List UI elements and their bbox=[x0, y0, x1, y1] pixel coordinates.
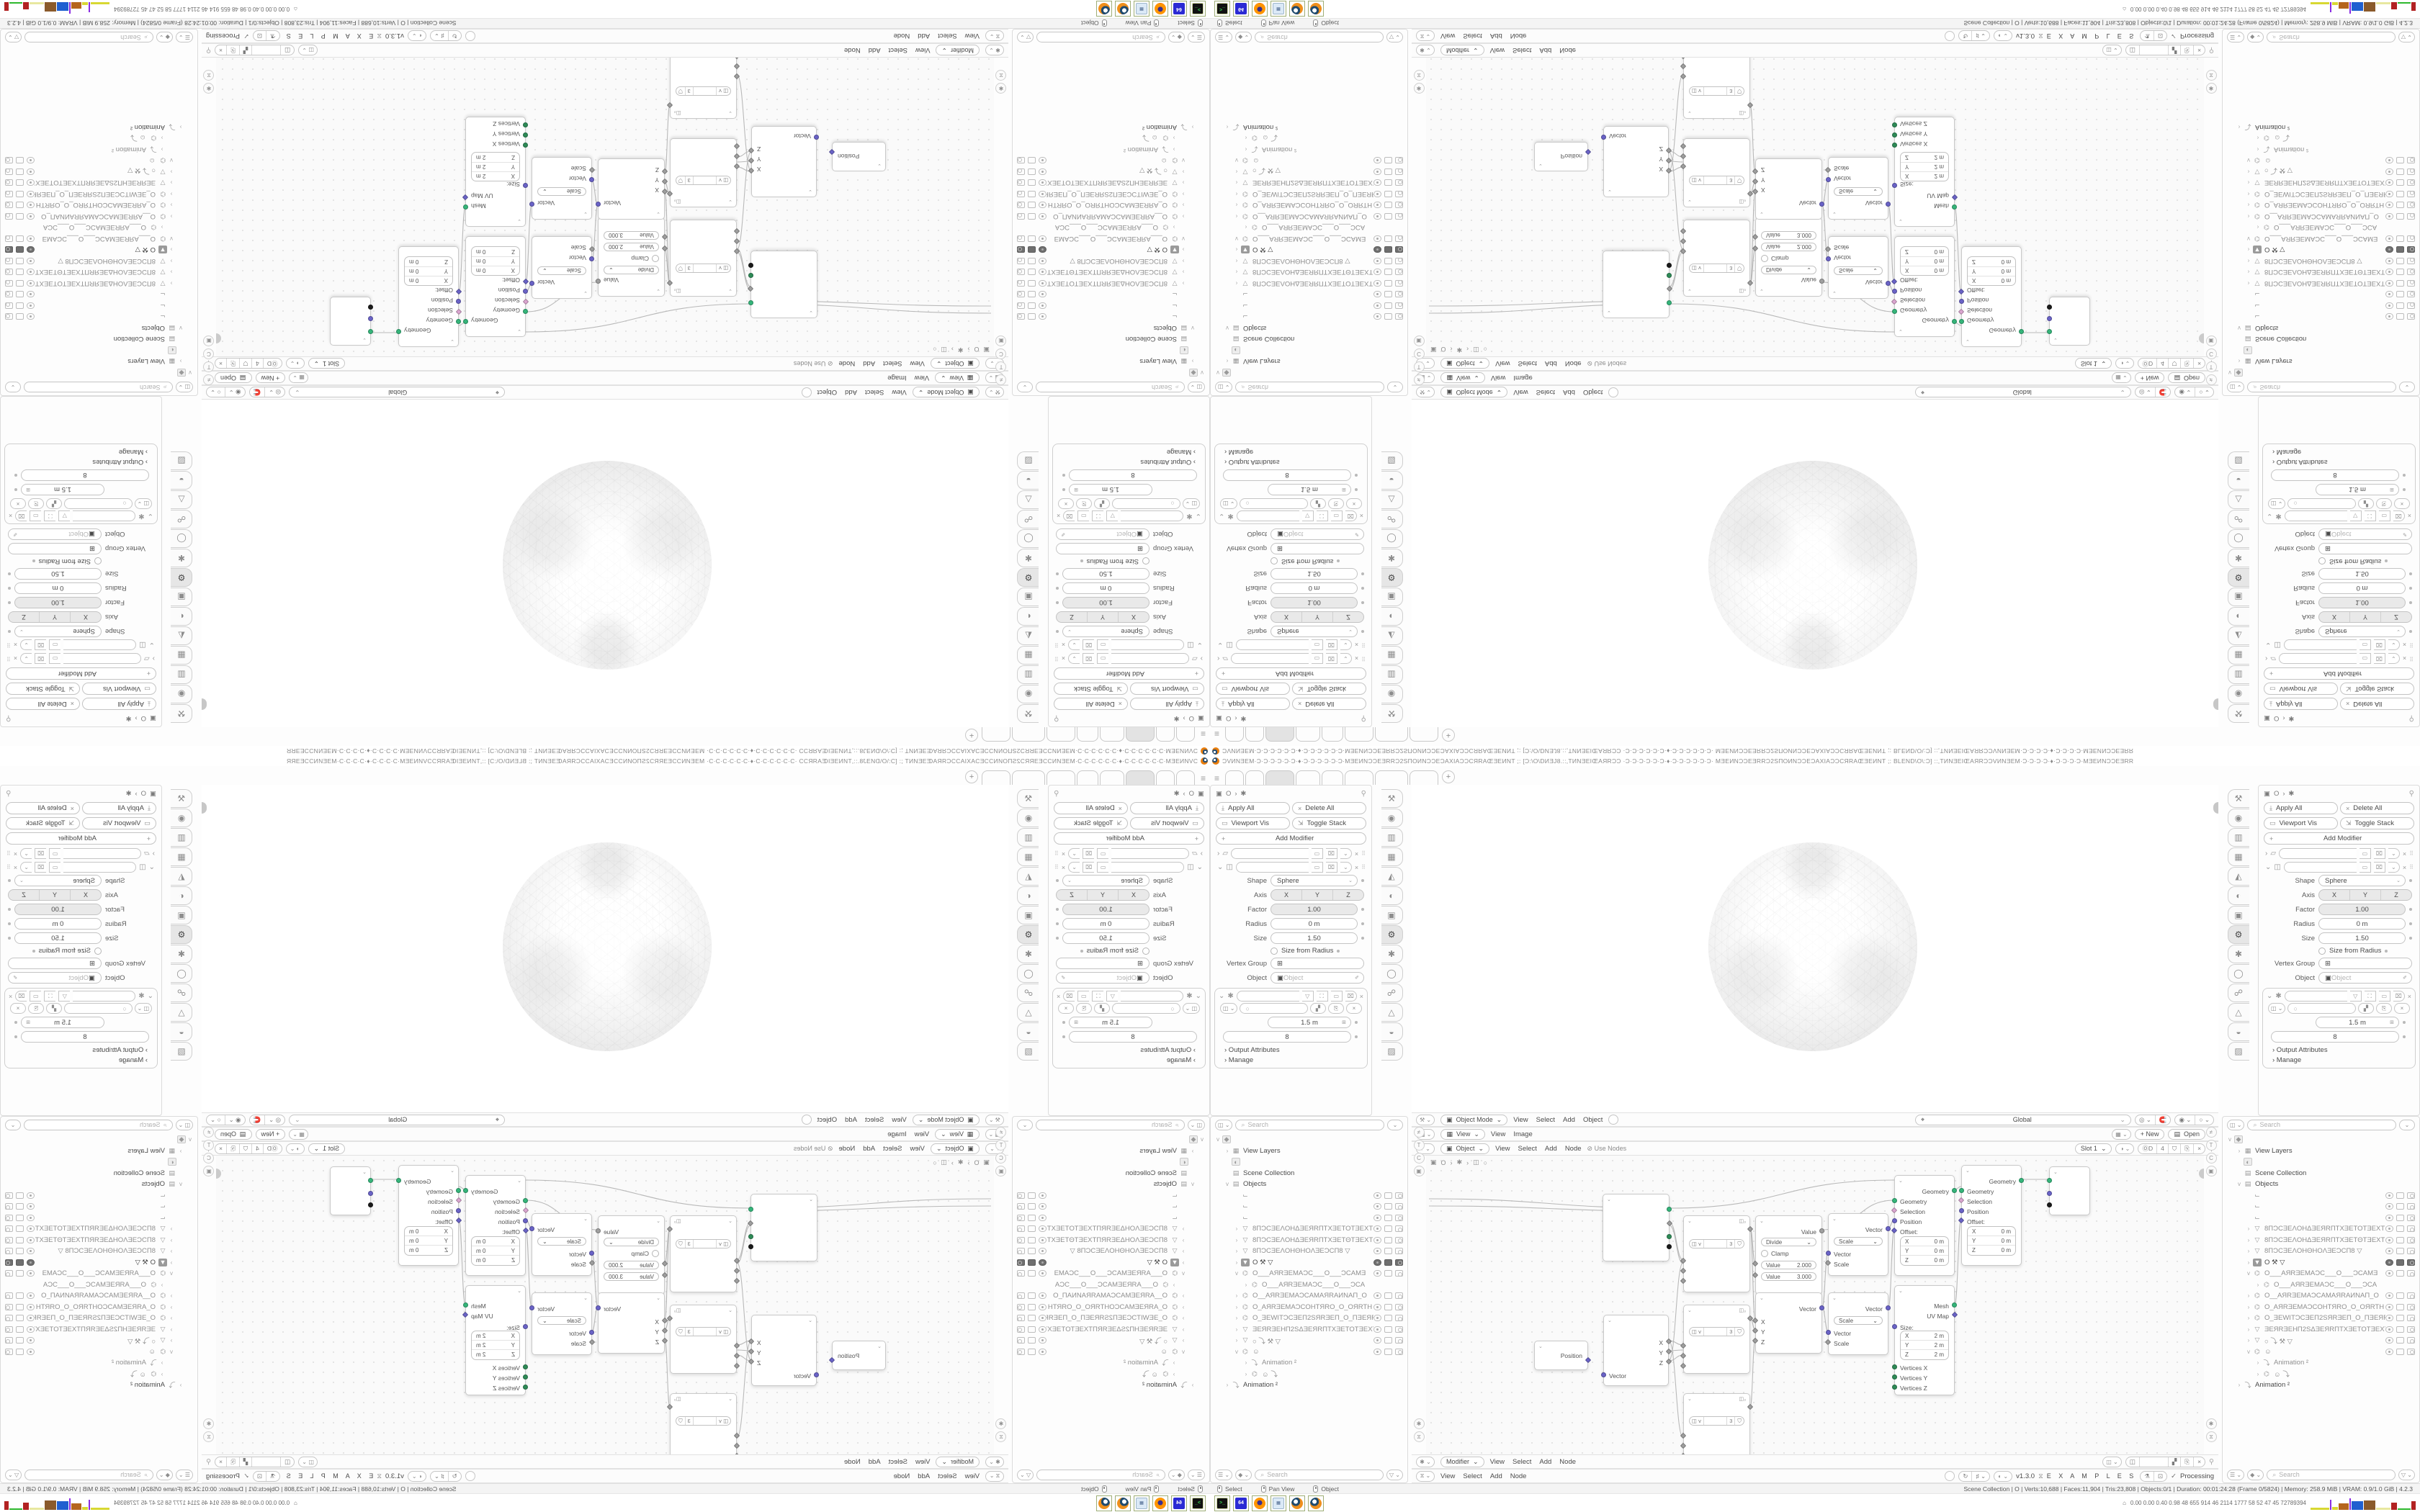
viewport-display-toggle[interactable] bbox=[1384, 168, 1392, 175]
render-camera-toggle[interactable] bbox=[1017, 313, 1025, 320]
visibility-eye-toggle[interactable] bbox=[1373, 1203, 1381, 1210]
outliner-row[interactable]: ›▦View Layers bbox=[4, 356, 194, 367]
outliner-row[interactable]: ›⌬☺ ⤵ bbox=[2226, 1369, 2416, 1380]
nodetree-browse-button[interactable]: ◫ ⌄ bbox=[298, 45, 317, 56]
outliner-row[interactable]: ›▼O ⚒ ▽ bbox=[1016, 1257, 1206, 1269]
outliner-row[interactable]: ›▽○ ⤵ ⚒ ▽ bbox=[1214, 1335, 1404, 1346]
outliner-row[interactable]: ›⌬☺ ⤵ bbox=[1214, 1369, 1404, 1380]
menu-image[interactable]: Image bbox=[1513, 1130, 1532, 1138]
properties-tab-icon[interactable]: ▨ bbox=[2228, 1042, 2249, 1061]
viewport-display-toggle[interactable] bbox=[16, 1225, 24, 1232]
node-set-position-2[interactable]: ⌄GeometryGeometrySelectionPositionOffset… bbox=[398, 246, 459, 347]
render-camera-toggle[interactable] bbox=[2407, 1192, 2415, 1199]
workspace-tab[interactable] bbox=[1126, 770, 1155, 785]
visibility-eye-toggle[interactable] bbox=[1039, 1292, 1047, 1299]
side-tab-T[interactable]: T bbox=[2206, 361, 2217, 372]
toggle-stack-button[interactable]: ⇲Toggle Stack bbox=[2340, 817, 2414, 829]
menu-view[interactable]: View bbox=[915, 374, 929, 382]
node-socket[interactable] bbox=[1959, 299, 1964, 304]
render-camera-toggle[interactable] bbox=[5, 191, 13, 197]
gn-toggle-3[interactable]: ▭ bbox=[1331, 510, 1343, 521]
viewport-extra-circle[interactable] bbox=[802, 1115, 812, 1125]
node-socket[interactable] bbox=[814, 1372, 819, 1377]
properties-tab-icon[interactable]: ◒ bbox=[1018, 471, 1039, 490]
outliner-row[interactable]: ›⌬O__AЯRƎEMAƆCAMAЯRAИNAП_O bbox=[1214, 1290, 1404, 1302]
node-socket[interactable] bbox=[1892, 1324, 1897, 1329]
node-value-field[interactable]: Value3.000 bbox=[604, 231, 659, 240]
modifier-extras-dropdown[interactable]: ⌄ bbox=[1340, 653, 1352, 664]
outliner-row[interactable]: ›⌬O_AЯRƎEMAƆCOHTЯRO_O_OЯRTH bbox=[2226, 1302, 2416, 1313]
outliner-scene-button[interactable]: ◆ ⌄ bbox=[2247, 32, 2264, 43]
render-camera-toggle[interactable] bbox=[1395, 179, 1403, 186]
mode-dropdown[interactable]: ▣ Object Mode ⌄ bbox=[1440, 1115, 1507, 1125]
gn-name-field[interactable] bbox=[1121, 510, 1183, 521]
side-tab-T[interactable]: T bbox=[1414, 1140, 1425, 1151]
node-socket[interactable] bbox=[529, 202, 534, 207]
outliner-row[interactable]: ⌙ bbox=[1214, 300, 1404, 312]
visibility-eye-toggle[interactable] bbox=[27, 1203, 35, 1210]
outliner-row[interactable]: ›▽○ ⤵ ⚒ ▽ bbox=[4, 166, 194, 178]
node-value-field[interactable]: Value3.000 bbox=[1761, 231, 1816, 240]
taskbar-app-firefox[interactable] bbox=[1252, 1495, 1268, 1511]
viewport-display-toggle[interactable] bbox=[16, 1192, 24, 1199]
gn-toggle-1[interactable]: ▽ bbox=[58, 510, 70, 521]
hamburger-menu-icon[interactable]: ≡ bbox=[1214, 773, 1219, 783]
gn-tree-name-field[interactable]: ○ bbox=[2287, 1003, 2356, 1014]
node-socket[interactable] bbox=[1826, 177, 1831, 182]
delete-all-button[interactable]: ×Delete All bbox=[2340, 698, 2414, 710]
axis-toggle[interactable]: XYZ bbox=[8, 611, 102, 623]
outliner-row[interactable]: ›⌬O_ƎEWITƆCƎEП2SЯRƎEП_O_ПƎEЯR bbox=[4, 1313, 194, 1324]
node-socket[interactable] bbox=[748, 273, 753, 278]
viewport-display-toggle[interactable] bbox=[1384, 1203, 1392, 1210]
gn-value-m-field[interactable]: 1.5 m⊞ bbox=[1069, 484, 1152, 495]
viewport-display-toggle[interactable] bbox=[2396, 1237, 2404, 1243]
addon-globe-button[interactable]: ◐ ⌄ bbox=[1994, 31, 2012, 42]
viewport-display-toggle[interactable] bbox=[1384, 1237, 1392, 1243]
taskbar-app-terminal[interactable]: >_ bbox=[1190, 1495, 1206, 1511]
add-modifier-button[interactable]: +Add Modifier bbox=[6, 832, 156, 845]
gn-value-int-field[interactable]: 8 bbox=[1223, 469, 1351, 481]
gn-name-field[interactable] bbox=[2285, 510, 2347, 521]
visibility-eye-toggle[interactable] bbox=[2385, 1292, 2393, 1299]
viewport-display-toggle[interactable] bbox=[16, 1304, 24, 1310]
manage-toggle[interactable]: › Manage bbox=[2265, 1054, 2413, 1064]
use-nodes-checkbox[interactable]: ⊘ Use Nodes bbox=[794, 1145, 833, 1153]
visibility-eye-toggle[interactable] bbox=[1039, 291, 1047, 297]
viewport-display-toggle[interactable] bbox=[2396, 313, 2404, 320]
render-camera-toggle[interactable] bbox=[1395, 258, 1403, 264]
menu-select[interactable]: Select bbox=[1463, 1472, 1482, 1480]
gn-chart-button[interactable]: ▞ bbox=[2358, 1003, 2374, 1014]
workspace-tab[interactable] bbox=[1047, 727, 1075, 742]
modifier-display-toggle[interactable]: ▭ bbox=[1312, 848, 1323, 859]
shader-object-dropdown[interactable]: ▣ Object ⌄ bbox=[931, 359, 980, 369]
outliner-row[interactable]: ▤Scene Collection bbox=[1214, 333, 1404, 345]
visibility-eye-toggle[interactable] bbox=[2385, 179, 2393, 186]
properties-tab-icon[interactable]: ▦ bbox=[1381, 847, 1403, 866]
node-socket[interactable] bbox=[1819, 279, 1824, 284]
properties-tab-icon[interactable]: ◯ bbox=[171, 964, 193, 983]
modifier-render-toggle[interactable]: ⌧ bbox=[35, 653, 46, 664]
visibility-eye-toggle[interactable] bbox=[2385, 213, 2393, 220]
properties-tab-icon[interactable]: ⚒ bbox=[171, 704, 193, 723]
node-socket[interactable] bbox=[589, 177, 594, 182]
outliner-display-mode-button[interactable]: ◫ ⌄ bbox=[1188, 1120, 1205, 1130]
menu-view[interactable]: View bbox=[1513, 389, 1528, 397]
menu-view[interactable]: View bbox=[1513, 1116, 1528, 1124]
modifier-render-toggle[interactable]: ⌧ bbox=[1326, 848, 1337, 859]
size-from-radius-radio[interactable] bbox=[2318, 948, 2326, 955]
visibility-eye-toggle[interactable] bbox=[1039, 1270, 1047, 1277]
delete-all-button[interactable]: ×Delete All bbox=[1054, 698, 1128, 710]
render-camera-toggle[interactable] bbox=[1017, 280, 1025, 287]
viewport-display-toggle[interactable] bbox=[1028, 1315, 1036, 1321]
render-camera-toggle[interactable] bbox=[2407, 291, 2415, 297]
node-socket[interactable] bbox=[523, 1198, 528, 1203]
gn-unlink-button[interactable]: × bbox=[1058, 498, 1074, 509]
node-vector-math-scale-2[interactable]: ⌄Scale⌄VectorVectorScale bbox=[1828, 157, 1888, 220]
properties-tab-icon[interactable]: ☍ bbox=[1381, 510, 1403, 528]
gn-name-field[interactable] bbox=[2285, 991, 2347, 1002]
visibility-eye-toggle[interactable] bbox=[1039, 213, 1047, 220]
node-socket[interactable] bbox=[1886, 281, 1891, 286]
properties-tab-icon[interactable]: ☍ bbox=[2228, 984, 2249, 1002]
radius-field[interactable]: 0 m bbox=[2318, 918, 2406, 930]
outliner-row[interactable]: ▤Scene Collection bbox=[4, 333, 194, 345]
outliner-row[interactable]: ›⤵Animation ² bbox=[1016, 144, 1206, 156]
modifier-extras-dropdown[interactable]: ⌄ bbox=[1068, 653, 1080, 664]
material-slot-dropdown[interactable]: Slot 1 ⌄ bbox=[308, 1143, 346, 1154]
side-tab-▣[interactable]: ▣ bbox=[996, 336, 1007, 346]
properties-tab-icon[interactable]: ◐ bbox=[171, 607, 193, 626]
render-camera-toggle[interactable] bbox=[1017, 1304, 1025, 1310]
outliner-scene-button[interactable]: ◆ ⌄ bbox=[1235, 1470, 1252, 1480]
gn-toggle-3[interactable]: ▭ bbox=[30, 991, 41, 1002]
outliner-row[interactable]: v▤Objects bbox=[1016, 323, 1206, 334]
node-vector-math-scale-1[interactable]: ⌄Scale⌄VectorVectorScale bbox=[1828, 236, 1888, 299]
node-socket[interactable] bbox=[1819, 1228, 1824, 1233]
menu-node[interactable]: Node bbox=[894, 1472, 910, 1480]
gn-toggle-2[interactable]: ⛶ bbox=[1317, 991, 1328, 1002]
properties-tab-icon[interactable]: ▣ bbox=[1381, 906, 1403, 924]
viewport-vis-button[interactable]: ▭Viewport Vis bbox=[1130, 683, 1204, 695]
outliner-row[interactable]: ⌙ bbox=[4, 1201, 194, 1212]
viewport-display-toggle[interactable] bbox=[2396, 213, 2404, 220]
image-new-button[interactable]: + New bbox=[2135, 373, 2165, 384]
outliner-funnel-filter-button[interactable]: ▽ ⌄ bbox=[1017, 1470, 1034, 1480]
outliner-row[interactable]: ›⌬O__AЯRƎEMAƆCAMAЯRAИNAП_O bbox=[2226, 211, 2416, 222]
side-tab-≠[interactable]: ≠ bbox=[996, 1127, 1007, 1138]
visibility-eye-toggle[interactable] bbox=[2385, 1203, 2393, 1210]
apply-all-button[interactable]: ⤓Apply All bbox=[2264, 698, 2338, 710]
node-separate-xyz[interactable]: ⌄XYZVector bbox=[751, 1315, 817, 1386]
outliner-row[interactable]: ›▽8ПƆCƎEΛOHΔƎEЯRПTXƎETΘTƎEXTИ bbox=[1214, 266, 1404, 278]
apply-all-button[interactable]: ⤓Apply All bbox=[1216, 698, 1290, 710]
gn-tree-name-field[interactable]: ○ bbox=[1112, 1003, 1180, 1014]
node-socket[interactable] bbox=[2047, 1178, 2052, 1183]
material-browse-button[interactable]: ◑ ⌄ bbox=[2115, 359, 2134, 369]
workspace-tab[interactable] bbox=[1100, 727, 1124, 742]
outliner-row[interactable]: ›⌬☺ ⤵ bbox=[1016, 1369, 1206, 1380]
side-tab-C[interactable]: C bbox=[204, 1153, 215, 1164]
properties-tab-icon[interactable]: ⚒ bbox=[2228, 704, 2249, 723]
properties-tab-icon[interactable]: ▥ bbox=[2228, 665, 2249, 684]
sidebar-toggle-capsule[interactable] bbox=[202, 802, 207, 814]
side-tab-⧖[interactable]: ⧖ bbox=[2206, 70, 2217, 81]
node-math-divide[interactable]: ⌄Divide⌄ ClampValue2.000Value3.000Value bbox=[598, 217, 665, 297]
transform-orientation-dropdown[interactable]: ⌖ Global ⌄ bbox=[289, 387, 505, 398]
properties-tab-icon[interactable]: ✱ bbox=[171, 945, 193, 963]
outliner-filter-mode-button[interactable]: ☰ ⌄ bbox=[1215, 32, 1232, 43]
workspace-tab[interactable] bbox=[1245, 727, 1264, 742]
outliner-row[interactable]: ›▽8ПƆCƎEΛOHΘHOΛƎEƆCП8 ▽ bbox=[4, 256, 194, 267]
outliner-row[interactable]: ⌙ bbox=[2226, 1190, 2416, 1202]
menu-add[interactable]: Add bbox=[1539, 1458, 1551, 1466]
outliner-row[interactable]: ›⌬O_ƎEWITƆCƎEП2SЯRƎEП_O_ПƎEЯR bbox=[2226, 1313, 2416, 1324]
render-camera-toggle[interactable] bbox=[2407, 213, 2415, 220]
gn-copy-button[interactable]: ⎘ bbox=[1328, 498, 1344, 509]
visibility-eye-toggle[interactable] bbox=[27, 1304, 35, 1310]
node-socket[interactable] bbox=[1826, 256, 1831, 261]
properties-tab-icon[interactable]: △ bbox=[1381, 490, 1403, 509]
visibility-eye-toggle[interactable] bbox=[2385, 1215, 2393, 1221]
menu-node[interactable]: Node bbox=[1565, 360, 1582, 368]
outliner-row[interactable]: ›▽○ ⤵ ⚒ ▽ bbox=[2226, 166, 2416, 178]
viewport-vis-button[interactable]: ▭Viewport Vis bbox=[1130, 817, 1204, 829]
gn-chart-button[interactable]: ▞ bbox=[46, 498, 62, 509]
menu-add[interactable]: Add bbox=[1563, 389, 1575, 397]
node-position[interactable]: ⌄Position bbox=[1534, 142, 1588, 171]
viewport-display-toggle[interactable] bbox=[1384, 1292, 1392, 1299]
properties-tab-icon[interactable]: ◭ bbox=[1381, 626, 1403, 645]
outliner-row[interactable]: ⌙ bbox=[1214, 311, 1404, 323]
viewport-display-toggle[interactable] bbox=[1384, 1315, 1392, 1321]
gn-unlink-button[interactable]: × bbox=[1058, 1003, 1074, 1014]
outliner-row[interactable]: ◐ bbox=[4, 345, 194, 356]
properties-tab-modifiers-selected[interactable]: ⚙ bbox=[171, 925, 193, 944]
taskbar-app-firefox[interactable] bbox=[1152, 1495, 1168, 1511]
viewport-display-toggle[interactable] bbox=[16, 258, 24, 264]
outliner-scene-button[interactable]: ◆ ⌄ bbox=[2247, 1470, 2264, 1480]
properties-tab-icon[interactable]: ☍ bbox=[1018, 510, 1039, 528]
object-picker-field[interactable]: ▣ Object✐ bbox=[1270, 528, 1364, 540]
node-socket[interactable] bbox=[529, 1305, 534, 1310]
menu-node[interactable]: Node bbox=[838, 1145, 855, 1153]
viewport-display-toggle[interactable] bbox=[1384, 1215, 1392, 1221]
viewport-display-toggle[interactable] bbox=[1028, 313, 1036, 320]
material-slot-dropdown[interactable]: Slot 1 ⌄ bbox=[2075, 359, 2112, 369]
render-camera-toggle[interactable] bbox=[1395, 1215, 1403, 1221]
outliner-row[interactable]: ›⌬O___AЯRƎEMAƆC___O___ƆCA bbox=[2226, 1279, 2416, 1291]
viewport-display-toggle[interactable] bbox=[1028, 1270, 1036, 1277]
viewport-display-toggle[interactable] bbox=[1384, 202, 1392, 208]
node-index-node-3[interactable]: ⌄◫₃◫ v3⛉ bbox=[670, 1393, 737, 1454]
menu-select[interactable]: Select bbox=[1512, 1458, 1531, 1466]
use-nodes-checkbox[interactable]: ⊘ Use Nodes bbox=[794, 360, 833, 368]
visibility-eye-toggle[interactable] bbox=[27, 157, 35, 163]
outliner-footer-search-input[interactable]: ⌕Search bbox=[1255, 1470, 1384, 1480]
radius-field[interactable]: 0 m bbox=[14, 582, 102, 594]
gn-unlink-button[interactable]: × bbox=[2394, 498, 2410, 509]
properties-tab-icon[interactable]: ▨ bbox=[2228, 451, 2249, 470]
gn-unlink-button[interactable]: × bbox=[10, 1003, 26, 1014]
properties-tab-icon[interactable]: ◉ bbox=[2228, 685, 2249, 703]
viewport-display-toggle[interactable] bbox=[1028, 191, 1036, 197]
render-camera-toggle[interactable] bbox=[1017, 269, 1025, 275]
size-field[interactable]: 1.50 bbox=[2318, 932, 2406, 944]
outliner-row[interactable]: ›⤵Animation ² bbox=[1214, 144, 1404, 156]
viewport-display-toggle[interactable] bbox=[1028, 246, 1036, 253]
manage-toggle[interactable]: › Manage bbox=[2265, 448, 2413, 458]
render-camera-toggle[interactable] bbox=[5, 235, 13, 242]
render-camera-toggle[interactable] bbox=[1395, 1270, 1403, 1277]
size-from-radius-radio[interactable] bbox=[94, 558, 102, 565]
render-camera-toggle[interactable] bbox=[5, 1326, 13, 1333]
outliner-row[interactable]: ⌙ bbox=[2226, 311, 2416, 323]
outliner-row[interactable]: ›▼O ⚒ ▽ bbox=[4, 244, 194, 256]
outliner-funnel-filter-button[interactable]: ▽ ⌄ bbox=[1386, 1470, 1403, 1480]
menu-add[interactable]: Add bbox=[1545, 1145, 1557, 1153]
viewport-display-toggle[interactable] bbox=[16, 191, 24, 197]
visibility-eye-toggle[interactable] bbox=[27, 1192, 35, 1199]
node-group-output[interactable]: ⌄ bbox=[330, 1166, 371, 1215]
render-camera-toggle[interactable] bbox=[1017, 246, 1025, 253]
node-value-field[interactable]: Value3.000 bbox=[604, 1272, 659, 1281]
node-socket[interactable] bbox=[463, 1188, 468, 1193]
properties-tab-icon[interactable]: ▥ bbox=[1018, 665, 1039, 684]
side-tab-▣[interactable]: ▣ bbox=[2206, 336, 2217, 346]
visibility-eye-toggle[interactable] bbox=[2385, 1304, 2393, 1310]
visibility-eye-toggle[interactable] bbox=[27, 302, 35, 309]
visibility-eye-toggle[interactable] bbox=[1373, 1304, 1381, 1310]
gn-value-m-field[interactable]: 1.5 m⊞ bbox=[21, 484, 104, 495]
gn-tree-name-field[interactable]: ○ bbox=[64, 1003, 133, 1014]
properties-tab-icon[interactable]: ▥ bbox=[1381, 828, 1403, 847]
transform-orientation-dropdown[interactable]: ⌖ Global ⌄ bbox=[289, 1115, 505, 1125]
menu-node[interactable]: Node bbox=[894, 32, 910, 40]
visibility-eye-toggle[interactable] bbox=[1373, 235, 1381, 242]
use-nodes-checkbox[interactable]: ⊘ Use Nodes bbox=[1587, 1145, 1627, 1153]
toggle-stack-button[interactable]: ⇲Toggle Stack bbox=[1054, 817, 1128, 829]
side-tab-⧖[interactable]: ⧖ bbox=[204, 1431, 215, 1442]
modifier-name-field[interactable] bbox=[1231, 653, 1309, 664]
viewport-display-toggle[interactable] bbox=[16, 313, 24, 320]
render-camera-toggle[interactable] bbox=[5, 202, 13, 208]
properties-tab-icon[interactable]: ✱ bbox=[1381, 549, 1403, 567]
hamburger-menu-icon[interactable]: ≡ bbox=[1201, 773, 1206, 783]
outliner-row[interactable]: ◐ bbox=[2226, 1156, 2416, 1168]
viewport-display-toggle[interactable] bbox=[16, 269, 24, 275]
visibility-eye-toggle[interactable] bbox=[1039, 1304, 1047, 1310]
render-camera-toggle[interactable] bbox=[1017, 1315, 1025, 1321]
node-socket[interactable] bbox=[1959, 319, 1964, 324]
modifier-delete-button[interactable]: × bbox=[1062, 642, 1065, 649]
properties-tab-icon[interactable]: ▦ bbox=[171, 646, 193, 665]
properties-tab-icon[interactable]: ⚒ bbox=[1018, 789, 1039, 808]
workspace-tab[interactable] bbox=[1176, 770, 1195, 785]
outliner-row[interactable]: ›▽8ПƆCƎEΛOHΔƎEЯRПTXƎETΘTƎEXTИ bbox=[1016, 266, 1206, 278]
properties-tab-icon[interactable]: ◒ bbox=[1381, 471, 1403, 490]
render-camera-toggle[interactable] bbox=[2407, 1270, 2415, 1277]
outliner-row[interactable]: ›▽○ ⤵ ⚒ ▽ bbox=[1214, 166, 1404, 178]
node-socket[interactable] bbox=[456, 299, 461, 304]
add-workspace-tab-button[interactable]: + bbox=[965, 729, 978, 742]
render-camera-toggle[interactable] bbox=[5, 179, 13, 186]
workspace-tab[interactable] bbox=[1077, 770, 1098, 785]
outliner-row[interactable]: v⌬O___AЯRƎEMAƆC___O___ƆCAMƎ bbox=[1016, 1268, 1206, 1279]
render-camera-toggle[interactable] bbox=[2407, 235, 2415, 242]
outliner-display-mode-button[interactable]: ◫ ⌄ bbox=[2227, 1120, 2244, 1130]
properties-tab-icon[interactable]: ◐ bbox=[171, 886, 193, 905]
properties-tab-icon[interactable]: ✱ bbox=[2228, 945, 2249, 963]
proportional-edit-controls[interactable]: ◉ ⌄○ ⌄ bbox=[206, 1115, 246, 1125]
node-set-position-1[interactable]: ⌄GeometryGeometrySelectionPositionOffset… bbox=[465, 1175, 526, 1276]
radius-field[interactable]: 0 m bbox=[1270, 918, 1358, 930]
image-open-button[interactable]: ▤ Open bbox=[2168, 373, 2205, 384]
properties-tab-icon[interactable]: ◯ bbox=[1018, 964, 1039, 983]
outliner-row[interactable]: ›⌬O___AЯRƎEMAƆC___O___ƆCA bbox=[1016, 1279, 1206, 1291]
render-camera-toggle[interactable] bbox=[1395, 280, 1403, 287]
visibility-eye-toggle[interactable] bbox=[1373, 1270, 1381, 1277]
properties-tab-icon[interactable]: △ bbox=[1018, 490, 1039, 509]
viewport-display-toggle[interactable] bbox=[16, 1237, 24, 1243]
properties-tab-icon[interactable]: ▣ bbox=[2228, 906, 2249, 924]
outliner-row[interactable]: ›▽8ПƆCƎEΛOHΘHOΛƎEƆCП8 ▽ bbox=[2226, 256, 2416, 267]
menu-add[interactable]: Add bbox=[1490, 1472, 1502, 1480]
gn-toggle-4[interactable]: ⌧ bbox=[15, 991, 27, 1002]
render-camera-toggle[interactable] bbox=[1017, 191, 1025, 197]
factor-field[interactable]: 1.00 bbox=[1062, 597, 1149, 608]
gn-copy-button[interactable]: ⎘ bbox=[28, 1003, 44, 1014]
outliner-row[interactable]: v⌬☺ bbox=[2226, 1346, 2416, 1358]
mode-dropdown[interactable]: ▣ Object Mode ⌄ bbox=[913, 387, 980, 398]
outliner-funnel-filter-button[interactable]: ▽ ⌄ bbox=[5, 1470, 22, 1480]
node-separate-xyz[interactable]: ⌄XYZVector bbox=[751, 126, 817, 197]
viewport-display-toggle[interactable] bbox=[2396, 246, 2404, 253]
modifier-extras-dropdown[interactable]: ⌄ bbox=[2388, 848, 2400, 859]
outliner-row[interactable]: ›⤵Animation ² bbox=[1016, 122, 1206, 133]
outliner-row[interactable]: ›▽○ ⤵ ⚒ ▽ bbox=[1016, 166, 1206, 178]
node-socket[interactable] bbox=[368, 329, 373, 334]
gn-value-int-field[interactable]: 8 bbox=[21, 469, 149, 481]
outliner-row[interactable]: v◆ bbox=[1214, 367, 1404, 379]
greeble-sphere-object[interactable] bbox=[1708, 461, 1917, 670]
node-socket[interactable] bbox=[1959, 1208, 1964, 1213]
side-tab-✱[interactable]: ✱ bbox=[1414, 83, 1425, 94]
gn-chart-button[interactable]: ▞ bbox=[1094, 498, 1110, 509]
viewport-vis-button[interactable]: ▭Viewport Vis bbox=[82, 817, 156, 829]
outliner-row[interactable]: ›▽8ПƆCƎEΛOHΘHOΛƎEƆCП8 ▽ bbox=[1016, 256, 1206, 267]
visibility-eye-toggle[interactable] bbox=[27, 1337, 35, 1344]
editor-type-button-viewport[interactable]: ⚒ ⌄ bbox=[985, 387, 1004, 398]
menu-view[interactable]: View bbox=[892, 1116, 906, 1124]
outliner-row[interactable]: ⌙ bbox=[1214, 1190, 1404, 1202]
properties-tab-icon[interactable]: ▥ bbox=[1381, 665, 1403, 684]
outliner-row[interactable]: ›⌬O_ƎEWITƆCƎEП2SЯRƎEП_O_ПƎEЯR bbox=[2226, 189, 2416, 200]
viewport-display-toggle[interactable] bbox=[1028, 1326, 1036, 1333]
viewport-display-toggle[interactable] bbox=[2396, 1292, 2404, 1299]
render-camera-toggle[interactable] bbox=[1017, 1349, 1025, 1355]
clamp-radio[interactable] bbox=[1761, 255, 1768, 262]
properties-tab-icon[interactable]: ▦ bbox=[1381, 646, 1403, 665]
viewport-display-toggle[interactable] bbox=[2396, 1315, 2404, 1321]
modifier-display-toggle[interactable]: ▭ bbox=[1312, 639, 1323, 650]
viewport-display-toggle[interactable] bbox=[1028, 1215, 1036, 1221]
render-camera-toggle[interactable] bbox=[1017, 213, 1025, 220]
toggle-stack-button[interactable]: ⇲Toggle Stack bbox=[1292, 683, 1366, 695]
outliner-row[interactable]: ›▽ƎEЯRƎEHП2SΔƎEЯRПTXƎETOTƎEXTИ bbox=[1214, 1324, 1404, 1336]
